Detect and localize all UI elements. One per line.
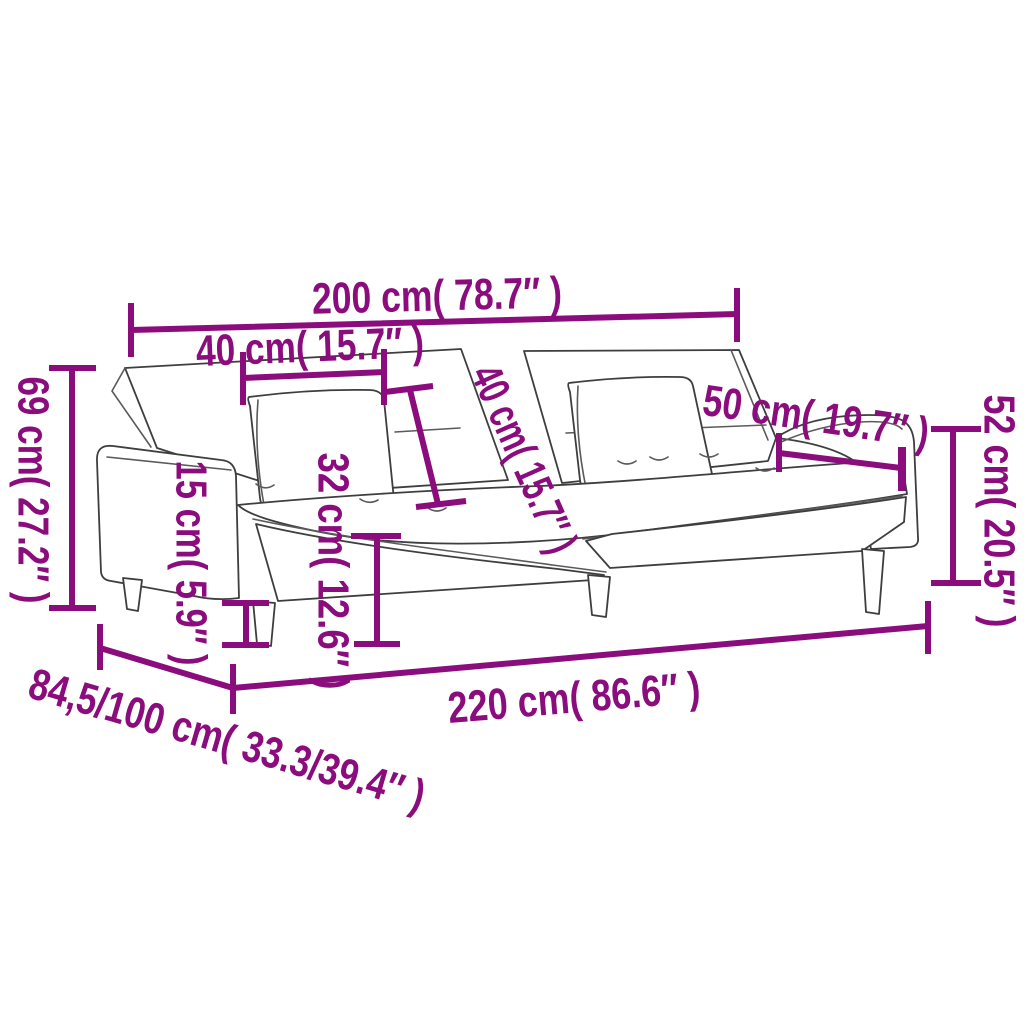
dim-total-length-label: 220 cm( 86.6″ ) [446,663,702,733]
diagram-svg: 200 cm( 78.7″ ) 40 cm( 15.7″ ) 69 cm( 27… [0,0,1024,1024]
dim-seat-height-label: 32 cm( 12.6″ ) [309,453,358,690]
dimension-diagram: 200 cm( 78.7″ ) 40 cm( 15.7″ ) 69 cm( 27… [0,0,1024,1024]
sofa-leg-front-mid-left [253,601,275,646]
dim-back-width-label: 200 cm( 78.7″ ) [311,268,562,324]
sofa-leg-front-right [862,549,884,614]
dim-arm-height-label: 52 cm( 20.5″ ) [975,395,1024,628]
sofa-pillow-right [568,377,712,490]
sofa-leg-front-left [123,578,142,611]
sofa-leg-front-middle [588,575,610,617]
dim-pillow-width-label: 40 cm( 15.7″ ) [195,318,425,376]
dim-leg-height-label: 15 cm( 5.9″ ) [167,461,216,666]
dim-back-height-label: 69 cm( 27.2″ ) [9,377,58,604]
dim-arm-height-line [931,429,981,583]
